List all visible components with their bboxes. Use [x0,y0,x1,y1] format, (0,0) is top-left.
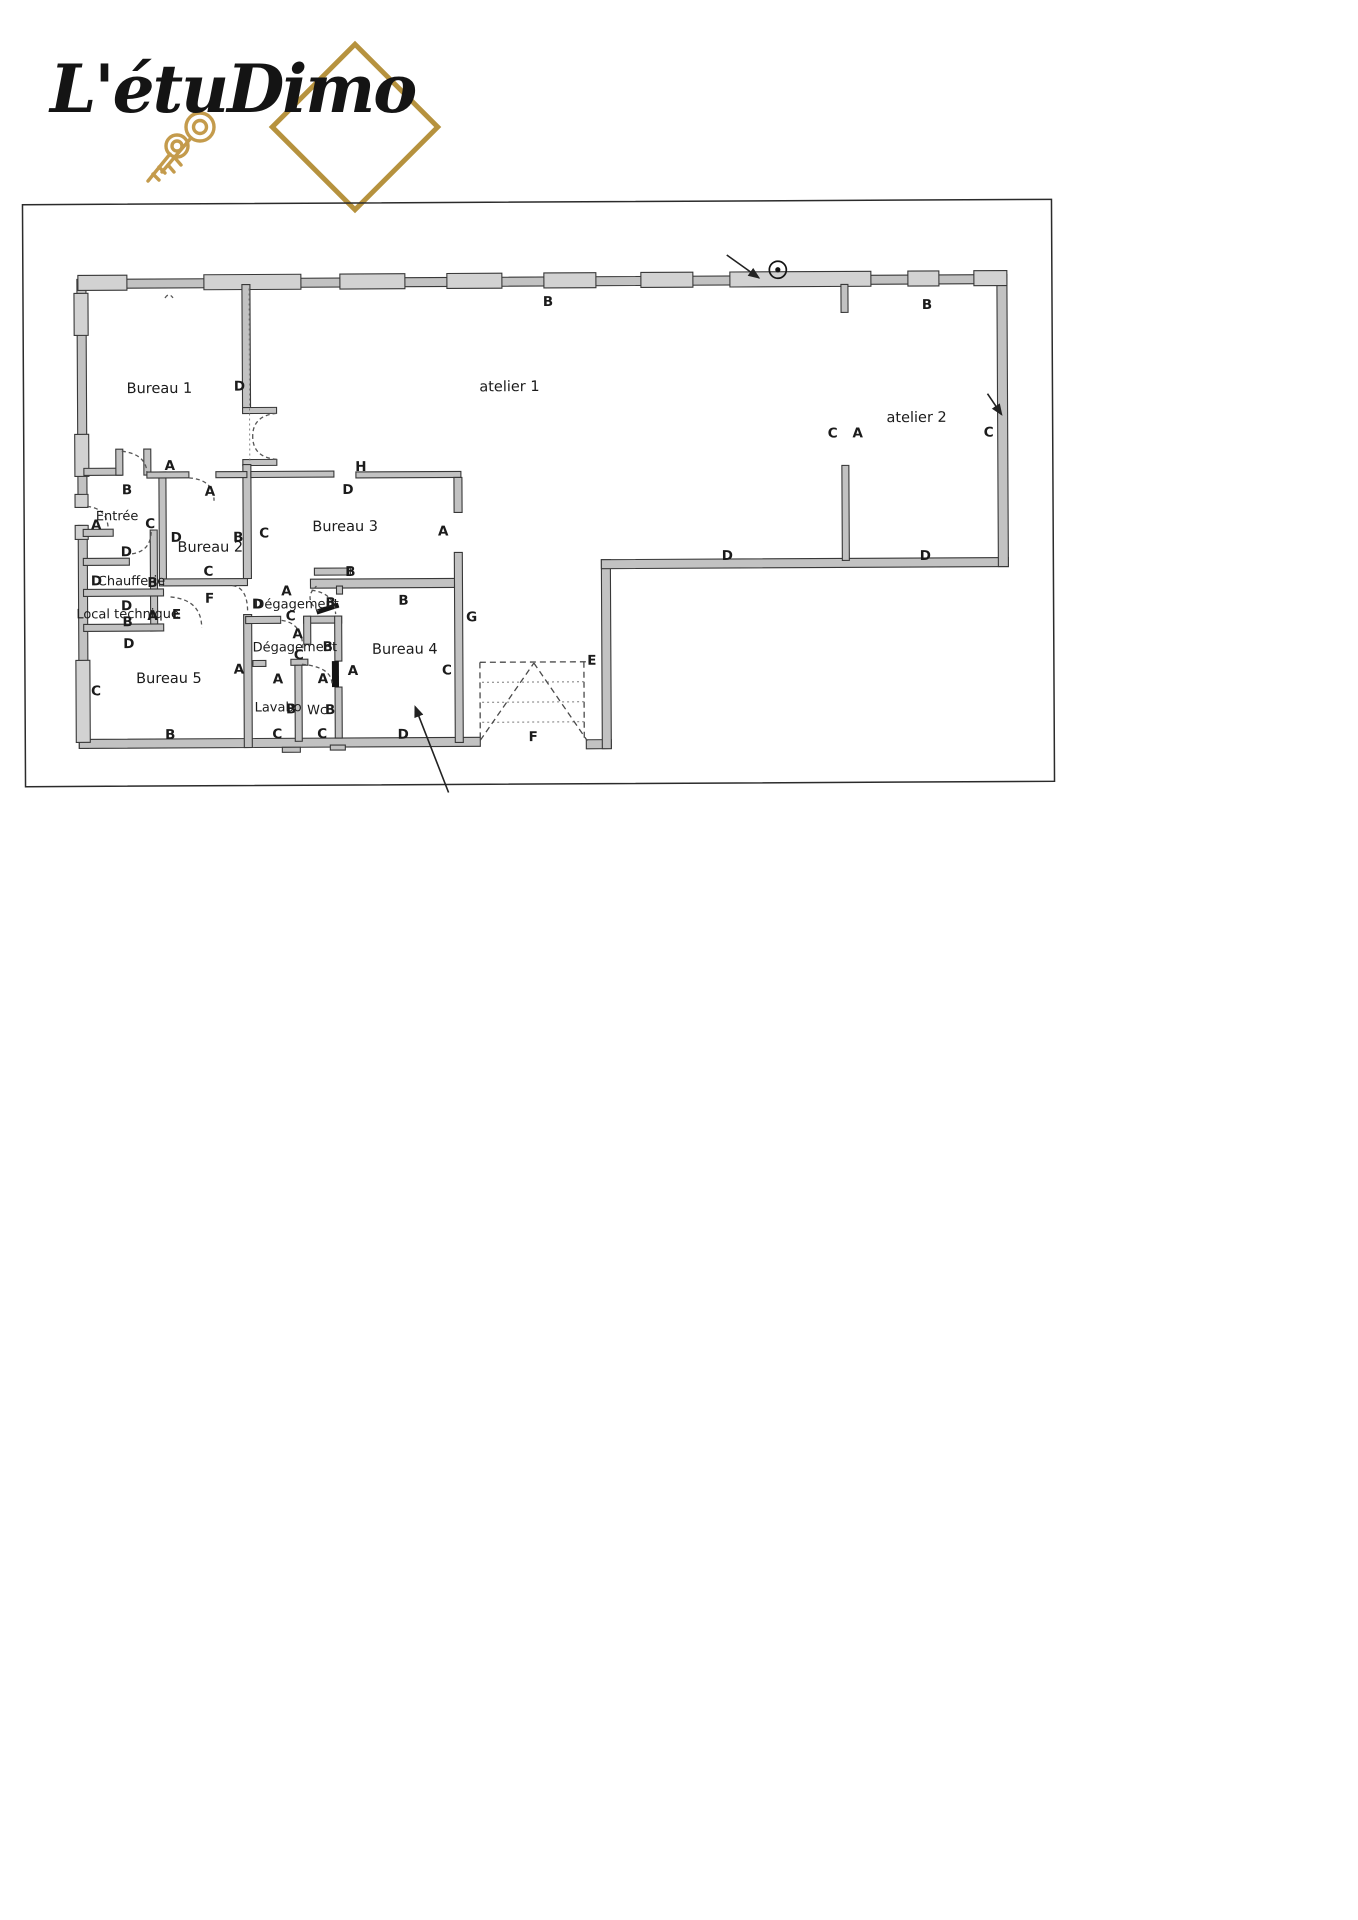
wall-letter: D [123,636,134,652]
wall-letter: B [147,575,157,591]
bottom-arrow [415,706,448,792]
wall-letter: B [922,297,932,313]
wall-letters: BBCACDDDAHDABACDDBCACBDBFBDBAEADBCGDABCA… [89,292,995,748]
wall-letter: C [984,425,994,441]
room-label: Bureau 4 [372,642,438,658]
wall-letter: A [852,425,863,441]
wall-letter: D [398,727,409,743]
wall-letter: A [292,626,303,642]
wall-letter: B [323,639,333,655]
wall-letter: A [234,662,245,678]
annotation-arrows [413,254,1004,793]
scanned-floorplan-page: { "logo": { "text": "L'étuDimo" }, "colo… [0,0,1358,1920]
wall-letter: D [920,548,931,564]
wall-letter: C [272,726,282,742]
wall-letter: B [122,614,132,630]
wall-letter: C [91,683,101,699]
wall-letter: C [145,516,155,532]
wall-letter: A [438,523,449,539]
wall-letter: A [348,663,359,679]
wall-letter: B [345,564,355,580]
window-segments [74,271,1009,743]
wall-letter: C [317,726,327,742]
wall-letter: F [529,729,538,745]
wall-letter: A [165,458,176,474]
wall-letter: A [281,583,292,599]
room-label: Entrée [96,509,139,524]
wall-letter: D [121,598,132,614]
room-label: atelier 2 [886,410,946,426]
room-label: atelier 1 [479,379,539,395]
wall-letter: A [318,671,329,687]
room-label: Bureau 3 [312,519,378,535]
wall-letter: C [286,608,296,624]
wall-letter: D [91,573,102,589]
wall-letter: B [398,593,408,609]
wall-letter: G [466,609,477,625]
room-label: Bureau 1 [127,381,193,397]
wall-letter: H [355,459,366,475]
wall-letter: F [205,591,214,607]
wall-letter: E [172,607,181,623]
wall-letter: E [587,653,596,669]
wall-letter: D [171,530,182,546]
wall-letter: D [342,482,353,498]
wall-letter: B [233,530,243,546]
wall-letter: A [91,517,102,533]
wall-letter: C [828,425,838,441]
wall-letter: A [147,608,158,624]
exterior-walls [77,275,1009,752]
wall-letter: B [165,727,175,743]
wall-letter: D [234,379,245,395]
room-labels: Bureau 1Bureau 2Bureau 3Bureau 4Bureau 5… [75,377,948,720]
wall-letter: D [252,596,263,612]
wall-letter: C [259,525,269,541]
wall-letter: A [273,671,284,687]
logo-text: L'étuDimo [50,50,415,128]
room-label: Bureau 5 [136,671,202,687]
wall-letter: C [294,647,304,663]
wall-letter: C [442,662,452,678]
wall-letter: B [286,701,296,717]
wall-letter: C [203,564,213,580]
wall-letter: A [205,484,216,500]
wall-letter: B [122,482,132,498]
wall-letter: B [325,702,335,718]
wall-letter: D [121,544,132,560]
wall-letter: B [543,294,553,310]
wall-letter: B [325,595,335,611]
wall-letter: D [722,548,733,564]
